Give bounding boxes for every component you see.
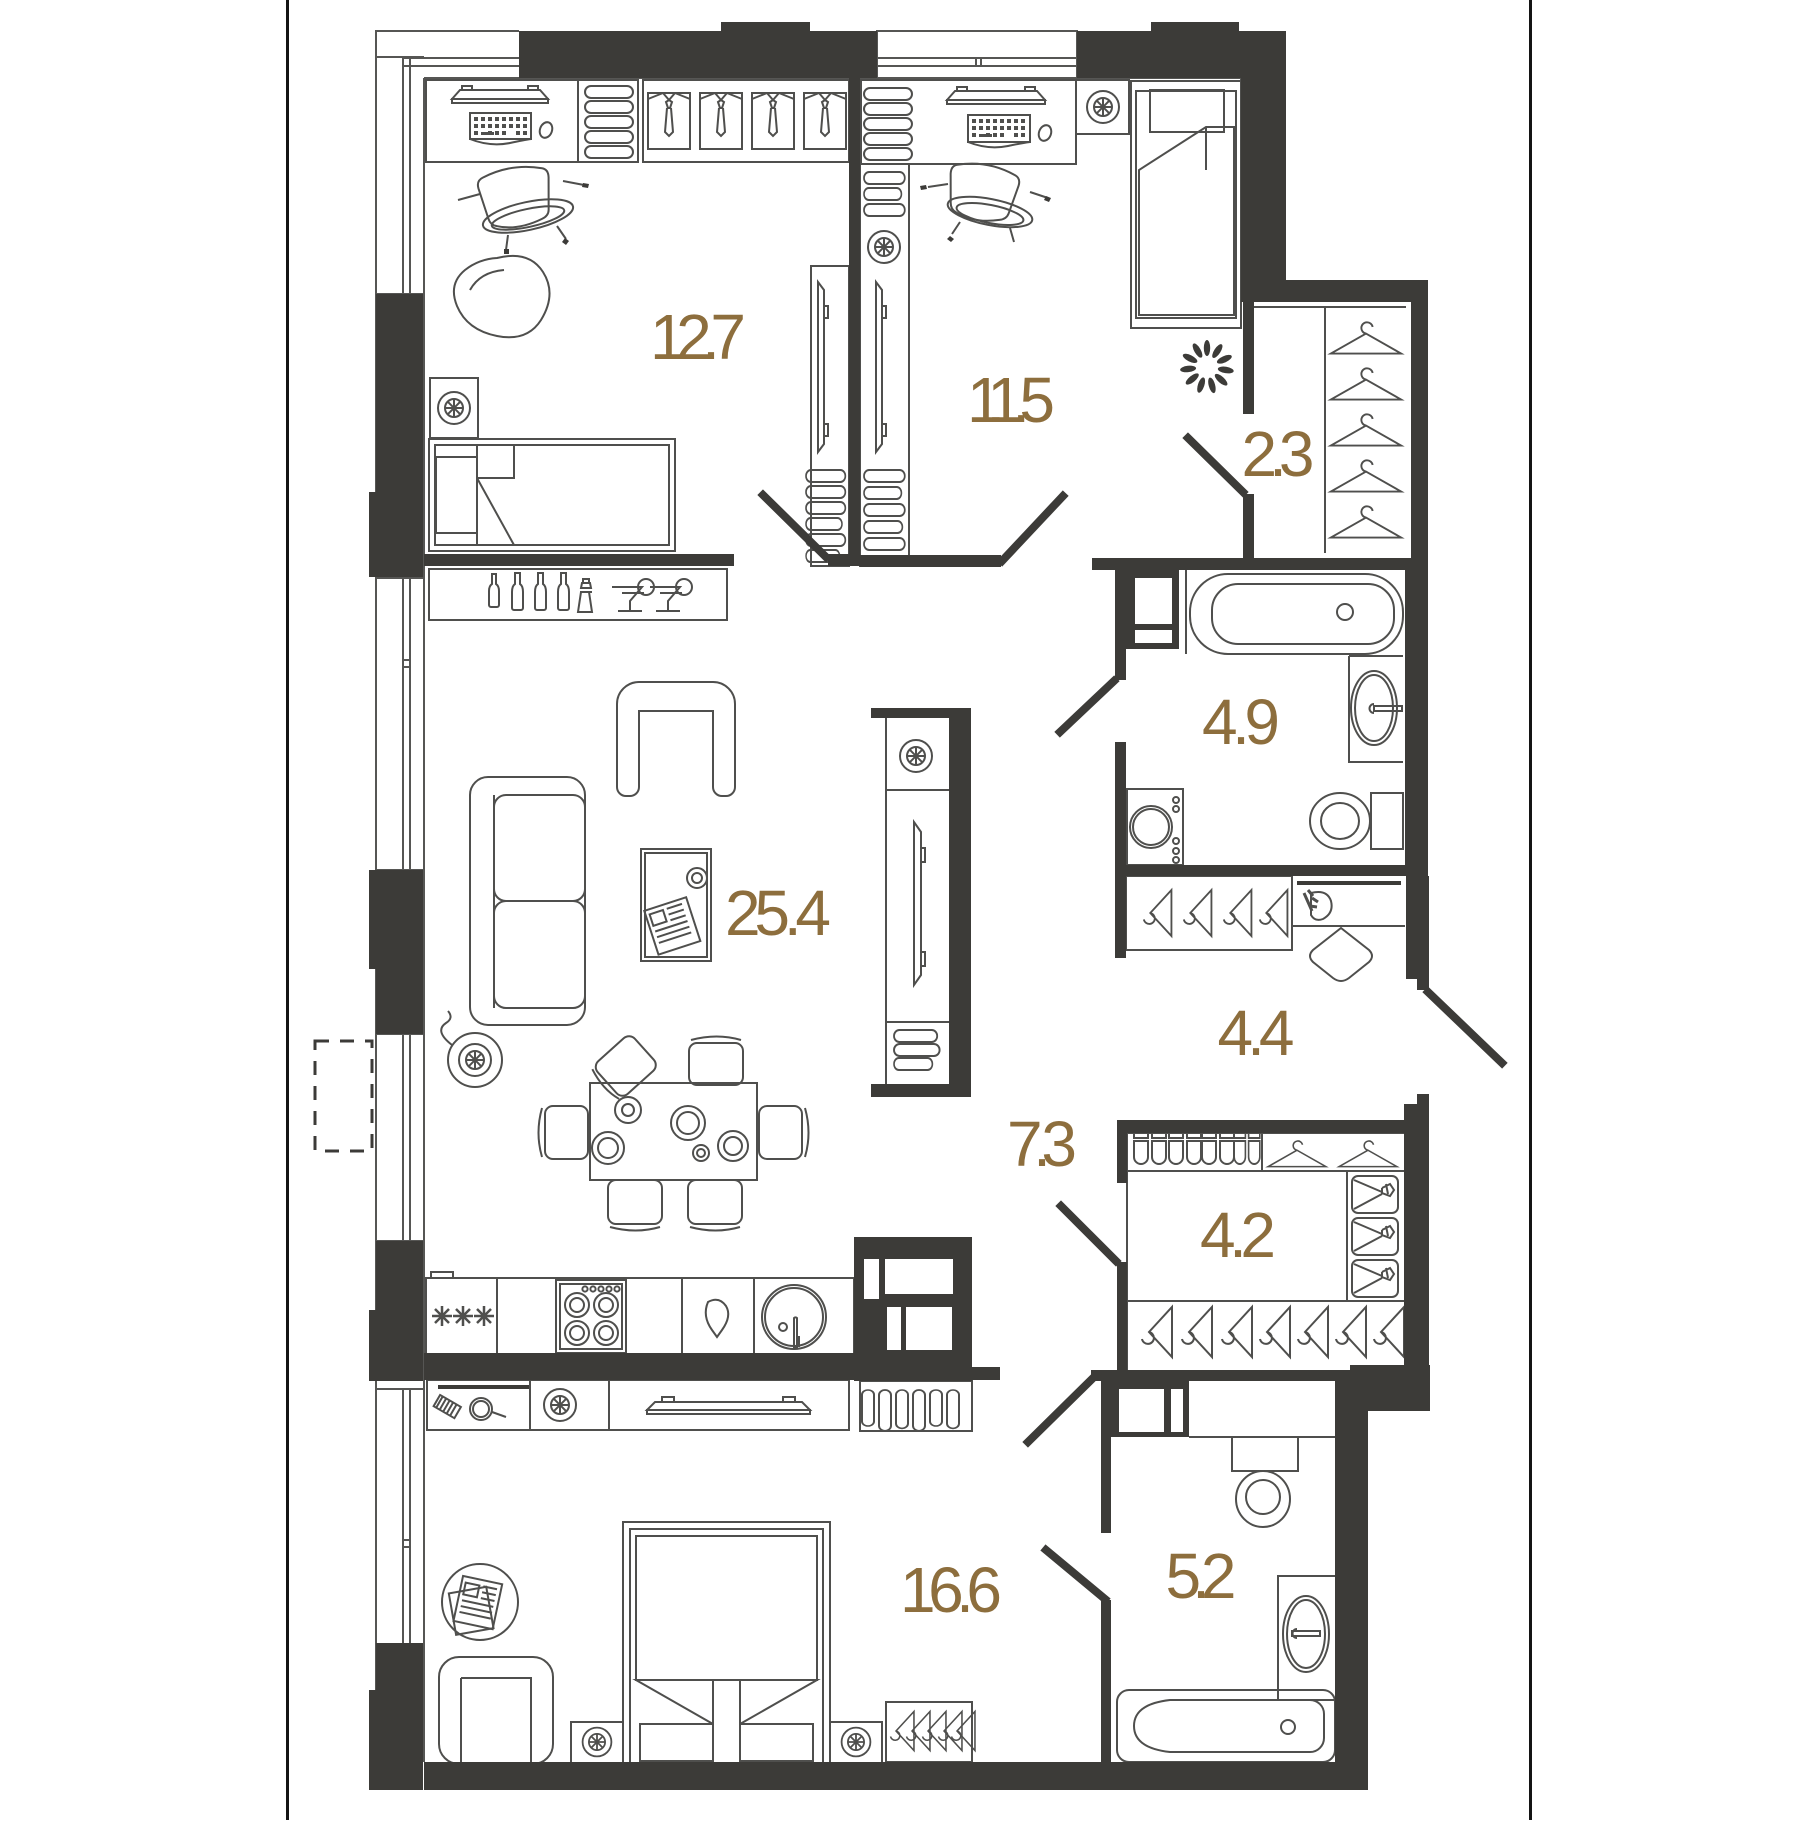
svg-text:25.4: 25.4 (725, 877, 831, 949)
svg-text:4.2: 4.2 (1200, 1199, 1276, 1271)
svg-text:12.7: 12.7 (650, 301, 746, 373)
svg-text:7.3: 7.3 (1007, 1108, 1077, 1180)
svg-text:4.4: 4.4 (1218, 997, 1295, 1069)
svg-text:4.9: 4.9 (1202, 686, 1280, 758)
svg-text:11.5: 11.5 (967, 364, 1055, 436)
svg-text:16.6: 16.6 (900, 1554, 1002, 1626)
svg-text:2.3: 2.3 (1242, 418, 1315, 490)
svg-text:5.2: 5.2 (1166, 1540, 1237, 1612)
